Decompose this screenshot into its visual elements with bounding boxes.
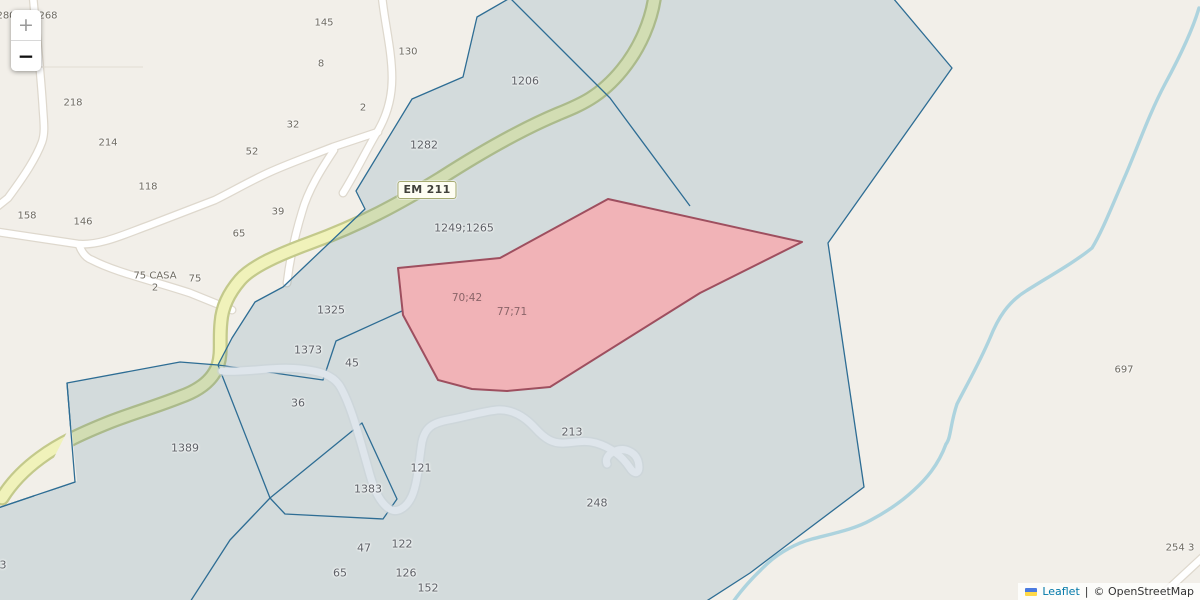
map-canvas[interactable]: 280268145130823252218214118158146396575 … — [0, 0, 1200, 600]
road-ref-badge: EM 211 — [397, 181, 456, 199]
attribution-separator: | — [1085, 583, 1089, 600]
zoom-in-button[interactable]: + — [11, 10, 41, 41]
leaflet-link[interactable]: Leaflet — [1042, 583, 1079, 600]
openstreetmap-credit[interactable]: © OpenStreetMap — [1093, 583, 1194, 600]
attribution-bar: Leaflet | © OpenStreetMap — [1018, 583, 1200, 600]
map-tiles — [0, 0, 1200, 600]
ukraine-flag-icon — [1025, 588, 1037, 596]
zoom-control: + − — [11, 10, 41, 71]
zoom-out-button[interactable]: − — [11, 41, 41, 71]
